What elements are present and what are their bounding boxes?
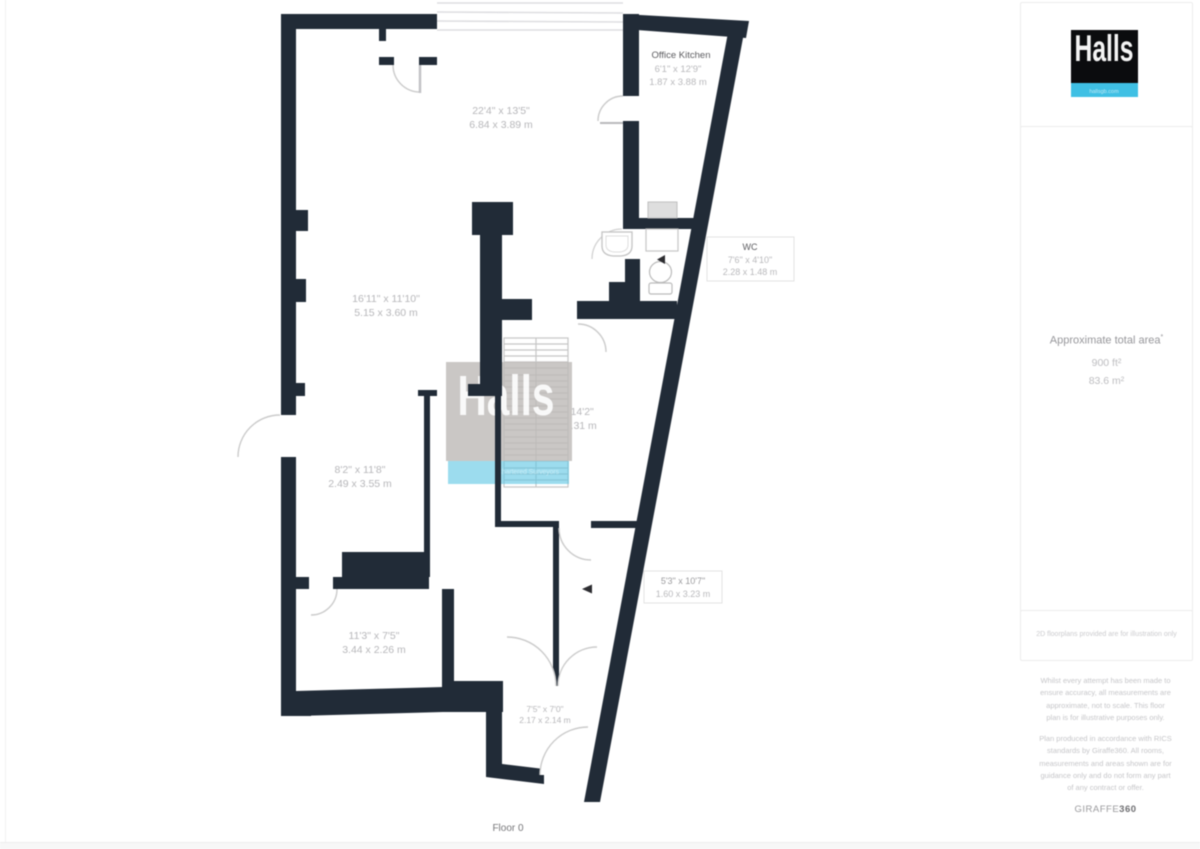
svg-text:5'3" x 10'7": 5'3" x 10'7" — [661, 576, 705, 586]
svg-text:Floor 0: Floor 0 — [492, 823, 524, 834]
svg-text:8'2" x 11'8": 8'2" x 11'8" — [335, 464, 386, 476]
svg-text:1.87 x 3.88 m: 1.87 x 3.88 m — [649, 77, 707, 88]
svg-text:7'6" x 4'10": 7'6" x 4'10" — [728, 255, 772, 265]
svg-text:Chartered Surveyors: Chartered Surveyors — [497, 467, 559, 476]
svg-text:6'1" x 12'9": 6'1" x 12'9" — [655, 64, 702, 75]
svg-text:7'5" x 7'0": 7'5" x 7'0" — [526, 704, 563, 714]
svg-text:WC: WC — [743, 242, 758, 252]
svg-text:22'4" x 13'5": 22'4" x 13'5" — [472, 105, 530, 117]
svg-text:5.15 x 3.60 m: 5.15 x 3.60 m — [354, 307, 418, 319]
svg-text:2.28 x 1.48 m: 2.28 x 1.48 m — [723, 267, 778, 277]
svg-text:1.60 x 3.23 m: 1.60 x 3.23 m — [656, 589, 711, 599]
svg-text:Office Kitchen: Office Kitchen — [652, 50, 711, 61]
svg-text:3.44 x 2.26 m: 3.44 x 2.26 m — [342, 644, 406, 656]
svg-text:2.49 x 3.55 m: 2.49 x 3.55 m — [328, 478, 392, 490]
svg-text:16'11" x 11'10": 16'11" x 11'10" — [352, 293, 420, 305]
svg-text:6.84 x 3.89 m: 6.84 x 3.89 m — [469, 119, 533, 131]
svg-text:11'3" x 7'5": 11'3" x 7'5" — [349, 630, 400, 642]
svg-text:hallsgb.com: hallsgb.com — [1089, 89, 1119, 95]
svg-text:Halls: Halls — [1075, 30, 1134, 69]
svg-text:2.17 x 2.14 m: 2.17 x 2.14 m — [519, 715, 571, 725]
